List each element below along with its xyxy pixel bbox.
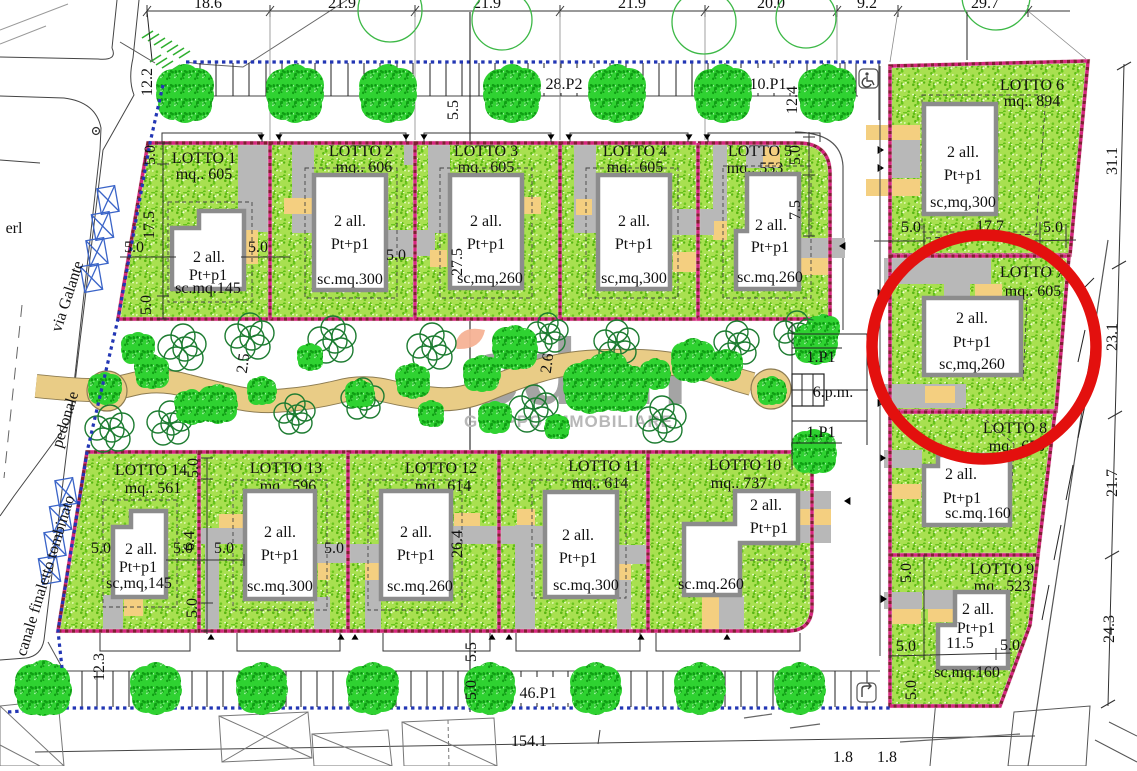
svg-text:2 all.: 2 all. [193,249,225,266]
svg-text:LOTTO 9: LOTTO 9 [970,561,1034,578]
svg-text:sc.mq.160: sc.mq.160 [934,664,1000,681]
svg-text:27.5: 27.5 [449,248,466,276]
svg-text:sc.mq.300: sc.mq.300 [553,577,619,594]
svg-text:2 all.: 2 all. [264,524,296,541]
svg-text:mq.. 894: mq.. 894 [1004,93,1060,110]
svg-text:7.5: 7.5 [787,200,804,220]
svg-text:2 all.: 2 all. [945,466,977,483]
svg-text:1.8: 1.8 [833,749,853,766]
svg-text:21.9: 21.9 [473,0,501,12]
svg-text:Pt+p1: Pt+p1 [467,236,505,253]
svg-text:12.3: 12.3 [91,653,108,681]
svg-text:sc.mq.300: sc.mq.300 [317,271,383,288]
svg-text:10.P1: 10.P1 [750,76,787,93]
svg-text:5.5: 5.5 [463,642,480,662]
svg-text:sc.mq.260: sc.mq.260 [387,578,453,595]
svg-text:2 all.: 2 all. [470,213,502,230]
svg-text:sc.mq.160: sc.mq.160 [945,505,1011,522]
svg-text:5.0: 5.0 [896,638,916,655]
svg-text:LOTTO 3: LOTTO 3 [454,143,518,160]
svg-text:9.2: 9.2 [857,0,877,12]
svg-text:5.0: 5.0 [173,540,193,557]
svg-text:sc,mq,260: sc,mq,260 [939,356,1005,373]
svg-text:1.8: 1.8 [877,749,897,766]
svg-text:5.0: 5.0 [1000,637,1020,654]
svg-text:46.P1: 46.P1 [520,685,557,702]
svg-text:5.0: 5.0 [898,563,915,583]
svg-text:sc,mq,300: sc,mq,300 [930,194,996,211]
svg-text:sc,mq,145: sc,mq,145 [106,575,172,592]
svg-text:LOTTO 6: LOTTO 6 [1000,77,1064,94]
svg-text:2.6: 2.6 [538,352,558,374]
svg-text:29.7: 29.7 [971,0,999,12]
svg-text:12.2: 12.2 [139,68,156,96]
svg-text:28.P2: 28.P2 [546,76,583,93]
svg-text:2 all.: 2 all. [562,527,594,544]
svg-text:LOTTO 12: LOTTO 12 [405,460,477,477]
svg-text:mq.. 614: mq.. 614 [572,475,628,492]
svg-text:sc.mq.260: sc.mq.260 [678,576,744,593]
svg-text:erl: erl [6,220,23,237]
svg-text:12.4: 12.4 [784,86,801,114]
svg-text:5.0: 5.0 [787,145,804,165]
svg-text:5.0: 5.0 [185,458,202,478]
svg-text:31.1: 31.1 [1104,147,1121,175]
svg-text:2 all.: 2 all. [400,524,432,541]
svg-text:5.0: 5.0 [463,680,480,700]
svg-text:1.P1: 1.P1 [807,424,836,441]
svg-text:sc.mq.300: sc.mq.300 [247,578,313,595]
svg-text:LOTTO 10: LOTTO 10 [709,457,781,474]
svg-text:5.0: 5.0 [138,295,155,315]
svg-text:5.0: 5.0 [214,540,234,557]
svg-text:LOTTO 4: LOTTO 4 [603,143,667,160]
svg-text:5.0: 5.0 [124,239,144,256]
svg-text:Pt+p1: Pt+p1 [119,559,157,576]
svg-text:5.0: 5.0 [386,247,406,264]
svg-text:2 all.: 2 all. [334,213,366,230]
svg-text:2.5: 2.5 [234,352,254,374]
svg-text:2 all.: 2 all. [947,144,979,161]
svg-text:Pt+p1: Pt+p1 [261,547,299,564]
svg-text:2 all.: 2 all. [755,217,787,234]
svg-text:23.1: 23.1 [1104,323,1121,351]
svg-text:sc.mq.145: sc.mq.145 [175,280,241,297]
svg-text:mq.. 561: mq.. 561 [125,480,181,497]
svg-text:2 all.: 2 all. [962,601,994,618]
svg-text:5.0: 5.0 [1043,219,1063,236]
svg-text:21.7: 21.7 [1104,469,1121,497]
svg-text:5.0: 5.0 [91,540,111,557]
svg-text:Pt+p1: Pt+p1 [944,167,982,184]
svg-text:LOTTO 8: LOTTO 8 [983,420,1047,437]
svg-text:1.P1: 1.P1 [807,349,836,366]
svg-text:154.1: 154.1 [511,733,547,750]
svg-text:5.0: 5.0 [142,145,159,165]
svg-text:LOTTO 11: LOTTO 11 [568,458,640,475]
svg-text:Pt+p1: Pt+p1 [953,334,991,351]
svg-text:sc,mq,300: sc,mq,300 [601,270,667,287]
svg-text:5.0: 5.0 [903,680,920,700]
svg-text:LOTTO 14: LOTTO 14 [115,462,187,479]
svg-text:Pt+p1: Pt+p1 [331,236,369,253]
svg-text:5.0: 5.0 [248,239,268,256]
svg-text:2 all.: 2 all. [956,310,988,327]
svg-text:LOTTO 2: LOTTO 2 [329,143,393,160]
svg-text:2 all.: 2 all. [618,213,650,230]
svg-text:Pt+p1: Pt+p1 [615,236,653,253]
svg-text:26.4: 26.4 [449,530,466,558]
svg-text:17.5: 17.5 [141,211,158,239]
svg-text:11.5: 11.5 [946,635,973,652]
svg-text:6.p.m.: 6.p.m. [813,384,853,401]
svg-text:LOTTO 13: LOTTO 13 [250,460,322,477]
svg-text:mq.. 605: mq.. 605 [176,166,232,183]
svg-text:5.0: 5.0 [324,540,344,557]
svg-text:Pt+p1: Pt+p1 [559,550,597,567]
svg-text:5.0: 5.0 [901,219,921,236]
svg-text:2 all.: 2 all. [750,497,782,514]
svg-text:sc,mq,260: sc,mq,260 [457,270,523,287]
svg-text:Pt+p1: Pt+p1 [751,239,789,256]
svg-text:18.6: 18.6 [194,0,222,12]
svg-text:sc.mq.260: sc.mq.260 [737,269,803,286]
svg-text:5.5: 5.5 [445,100,462,120]
svg-text:Pt+p1: Pt+p1 [750,520,788,537]
svg-text:LOTTO 5: LOTTO 5 [728,143,792,160]
svg-text:5.0: 5.0 [184,598,201,618]
svg-text:21.9: 21.9 [328,0,356,12]
svg-text:2 all.: 2 all. [125,541,157,558]
svg-text:Pt+p1: Pt+p1 [397,547,435,564]
svg-text:21.9: 21.9 [618,0,646,12]
svg-text:LOTTO 1: LOTTO 1 [172,150,236,167]
